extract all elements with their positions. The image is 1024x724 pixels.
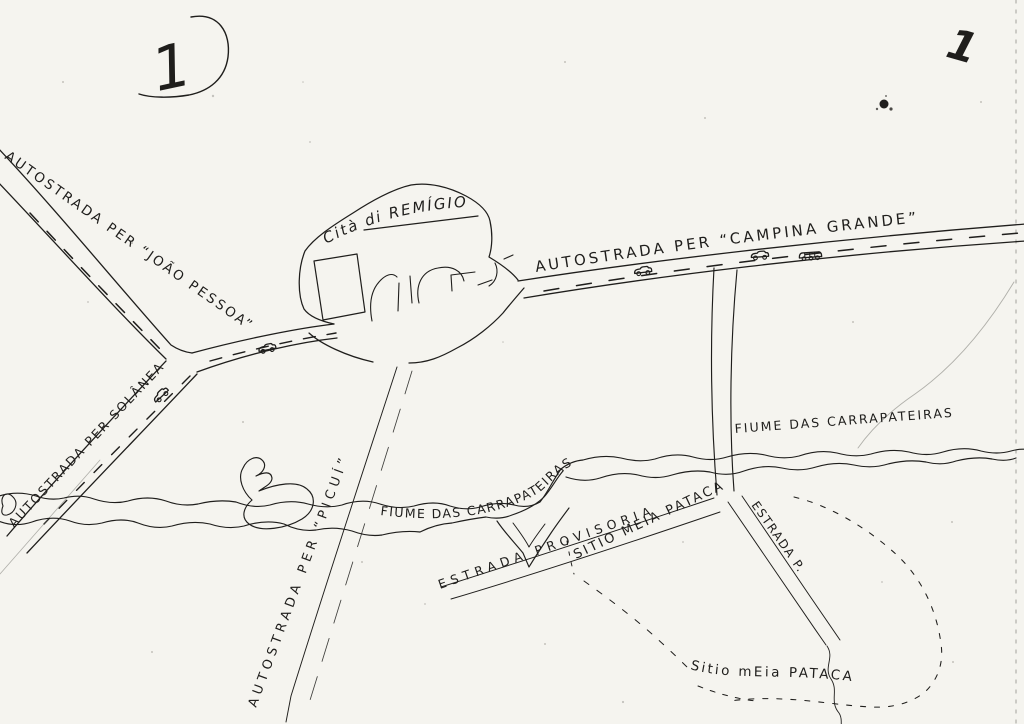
city-block-square [314,254,365,320]
label-sitio-meia-pataca-lower: Sitio mEia PATACA [689,657,855,685]
city-outline-south [409,288,524,363]
label-road-solanea: AUTOSTRADA PER SOLÂNEA [5,359,167,530]
label-river-carrapateiras-west: FIUME DAS CARRAPATEIRAS [380,454,575,521]
paper-specks [62,61,982,703]
car-icon [751,251,769,260]
label-sitio-meia-pataca-upper: SITIO MEIA PATACA [571,478,727,562]
scanned-map-page: 1 1 [0,0,1024,724]
page-number: 1 [146,30,198,106]
label-road-campina-grande: AUTOSTRADA PER “CAMPINA GRANDE” [534,208,920,276]
road-estrada-p [728,496,842,724]
road-sitio-access [712,268,737,495]
ink-blot [876,95,893,111]
road-main-campina-grande [192,224,1024,372]
city-streets [371,255,513,321]
map-sketch-svg: 1 1 [0,0,1024,724]
river-meander-pond [241,458,314,529]
road-centerline-dashes [30,213,160,349]
corner-page-mark: 1 [942,19,984,74]
car-icon [152,386,170,404]
road-centerline-dashes [210,333,336,361]
road-wiggly-continuation [827,646,842,724]
city-outline-south [309,333,373,362]
label-road-estrada-p: ESTRADA P. [749,499,809,576]
label-road-joao-pessoa: AUTOSTRADA PER “JOÃO PESSOA” [2,148,257,334]
label-river-carrapateiras-east: FIUME DAS CARRAPATEIRAS [734,405,954,436]
